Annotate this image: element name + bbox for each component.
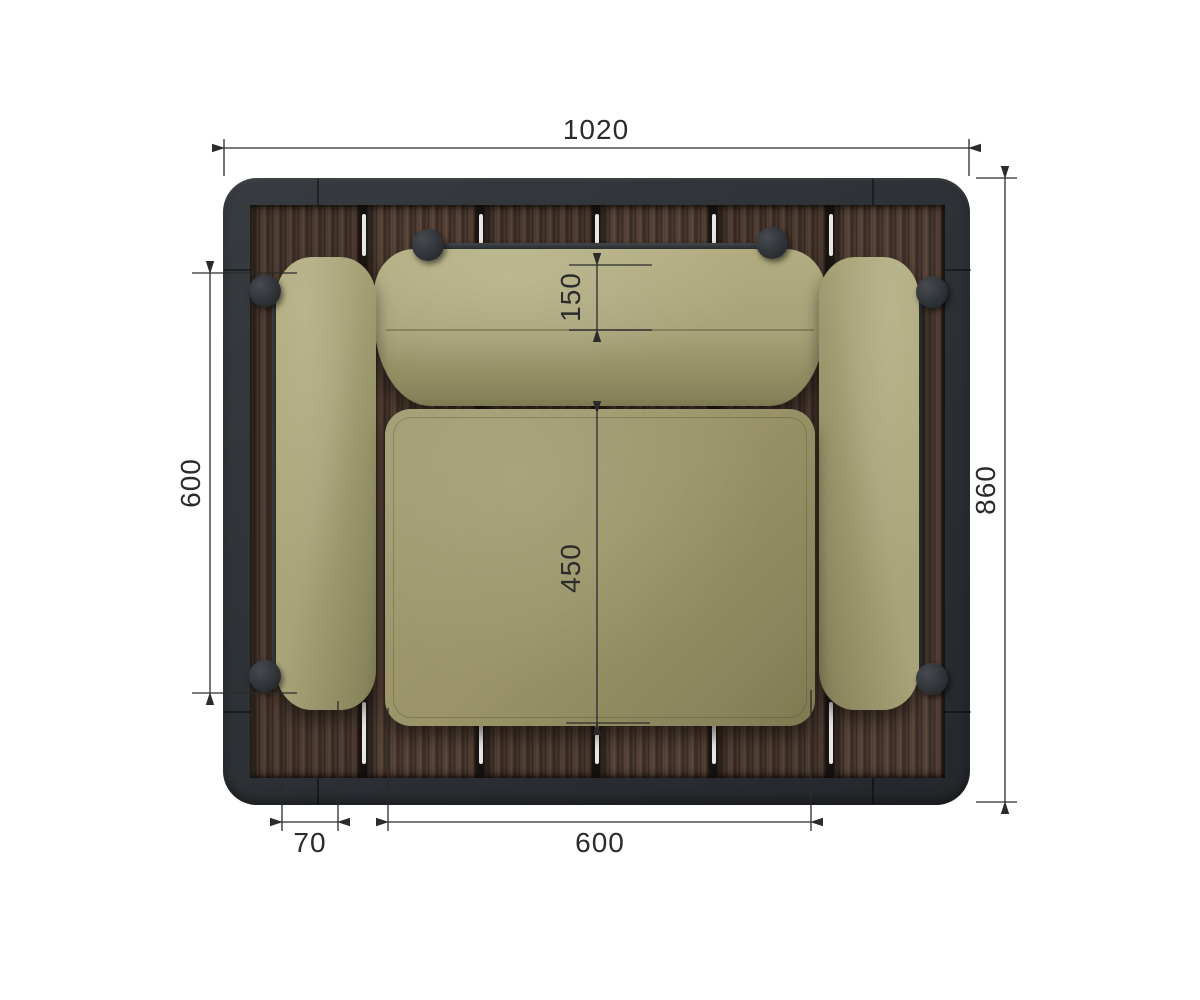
frame-bolt [249, 660, 281, 692]
plank-gap-light [362, 214, 366, 256]
dimension-label-armrest-length: 600 [177, 458, 205, 508]
frame-joint [872, 179, 874, 206]
plank-gap-light [829, 702, 833, 764]
armrest-cushion-right [819, 257, 919, 710]
frame-joint [317, 777, 319, 804]
frame-joint [944, 269, 971, 271]
cushion-seam [393, 417, 807, 718]
dimension-label-seat-width: 600 [575, 829, 625, 857]
dimension-label-armrest-width: 70 [293, 829, 326, 857]
frame-joint [872, 777, 874, 804]
frame-joint [317, 179, 319, 206]
frame-joint [224, 711, 251, 713]
cushion-seam [386, 329, 814, 331]
frame-bolt [412, 229, 444, 261]
frame-bolt [916, 276, 948, 308]
dimension-label-overall-depth: 860 [972, 465, 1000, 515]
seat-cushion [385, 409, 815, 726]
technical-drawing-canvas: 1020 860 600 150 450 70 600 [0, 0, 1200, 1000]
armrest-cushion-left [276, 257, 376, 710]
plank-gap-light [829, 214, 833, 256]
plank-gap-light [362, 702, 366, 764]
back-cushion [374, 249, 826, 406]
dimension-label-overall-width: 1020 [563, 116, 629, 144]
frame-joint [944, 711, 971, 713]
dimension-label-back-cushion-depth: 150 [557, 272, 585, 322]
frame-bolt [756, 227, 788, 259]
frame-bolt [916, 663, 948, 695]
frame-bolt [249, 275, 281, 307]
dimension-label-seat-depth: 450 [557, 543, 585, 593]
frame-joint [224, 269, 251, 271]
